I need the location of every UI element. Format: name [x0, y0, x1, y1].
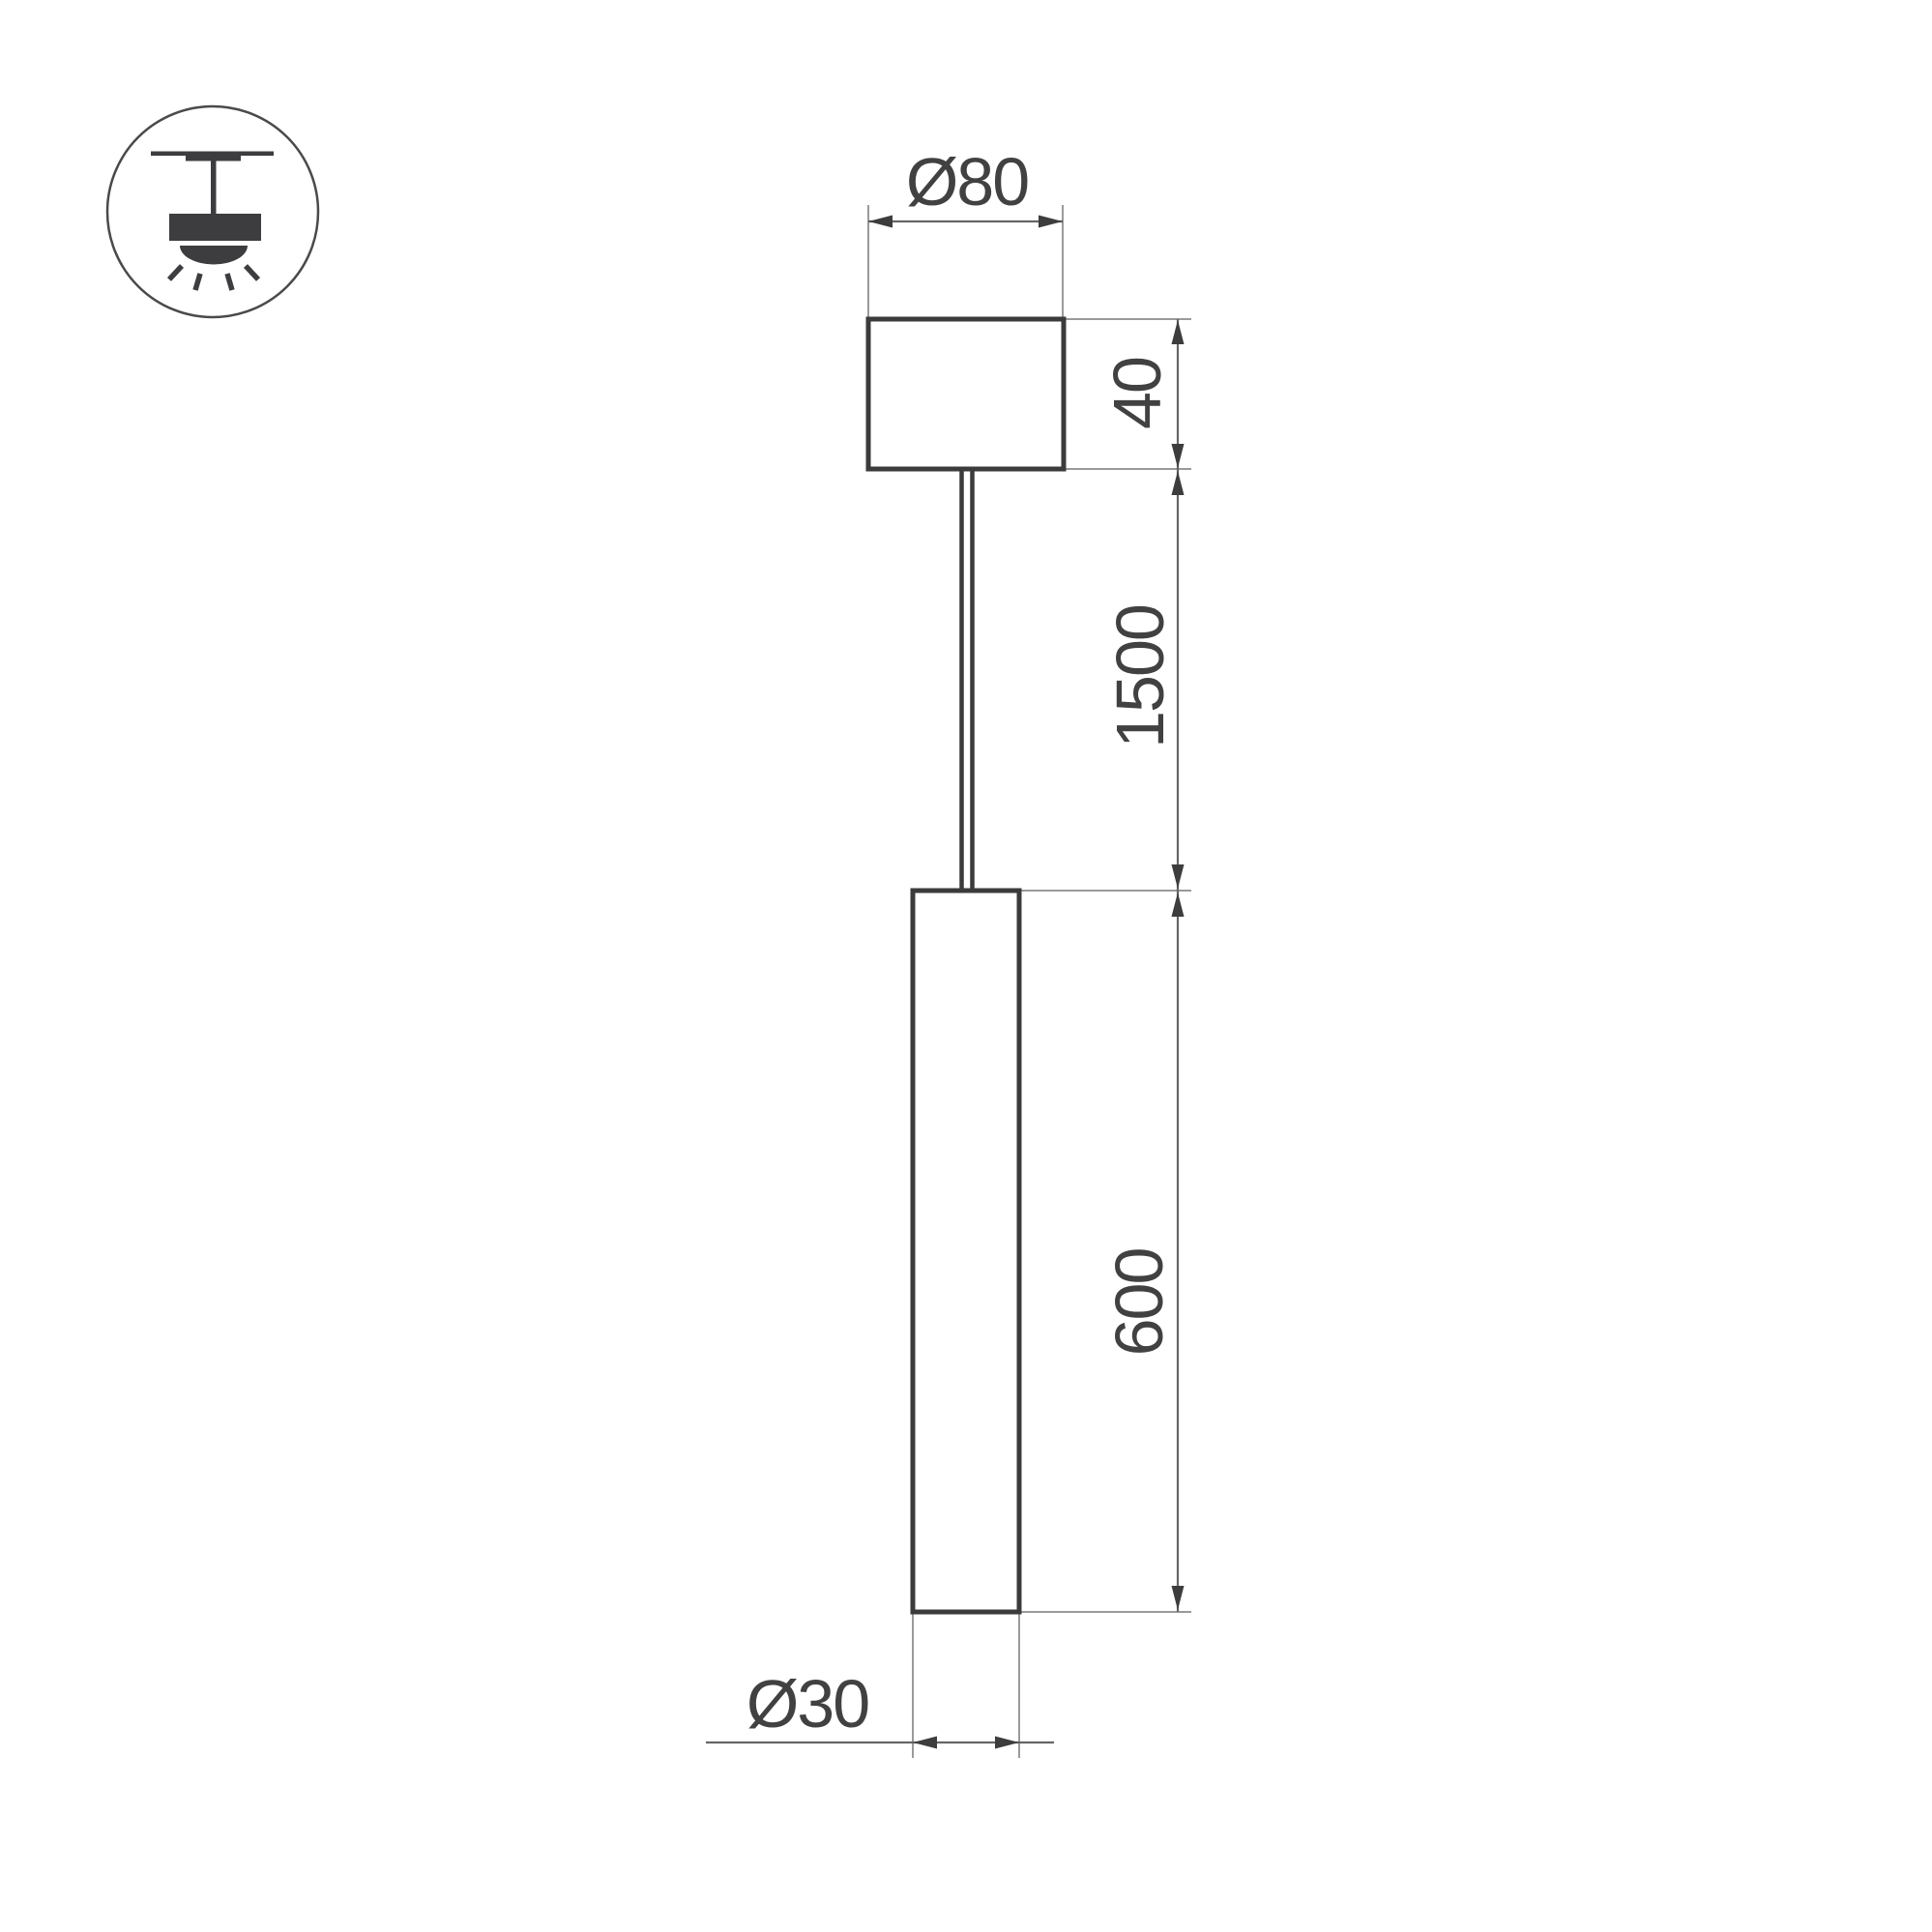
- arrow-600-bottom: [1172, 1586, 1185, 1610]
- arrow-d80-right: [1039, 216, 1063, 228]
- dimension-drawing-page: Ø80 40 1500 600 Ø30: [0, 0, 1932, 1932]
- suspension-length-label: 1500: [1102, 605, 1178, 748]
- arrow-40-bottom: [1172, 444, 1185, 468]
- arrow-1500-bottom: [1172, 864, 1185, 889]
- arrow-d80-left: [868, 216, 893, 228]
- tube-outline: [913, 891, 1019, 1612]
- icon-suspension-rod: [211, 156, 217, 215]
- canopy-outline: [868, 319, 1064, 469]
- fixture-diameter-label: Ø30: [746, 1666, 868, 1742]
- canopy-diameter-label: Ø80: [906, 144, 1028, 220]
- canopy-height-label: 40: [1099, 358, 1175, 429]
- arrow-40-top: [1172, 320, 1185, 344]
- arrow-600-top: [1172, 893, 1185, 917]
- icon-lamp-body: [169, 214, 261, 241]
- fixture-length-label: 600: [1101, 1249, 1177, 1357]
- icon-light-rays: [169, 266, 258, 290]
- arrow-d30-left: [913, 1737, 937, 1749]
- icon-ceiling-line: [151, 152, 274, 157]
- pendant-ceiling-mount-icon: [107, 106, 318, 317]
- icon-light-dome: [180, 246, 248, 265]
- luminaire-drawing: [868, 319, 1064, 1612]
- arrow-d30-right: [995, 1737, 1019, 1749]
- arrow-1500-top: [1172, 471, 1185, 495]
